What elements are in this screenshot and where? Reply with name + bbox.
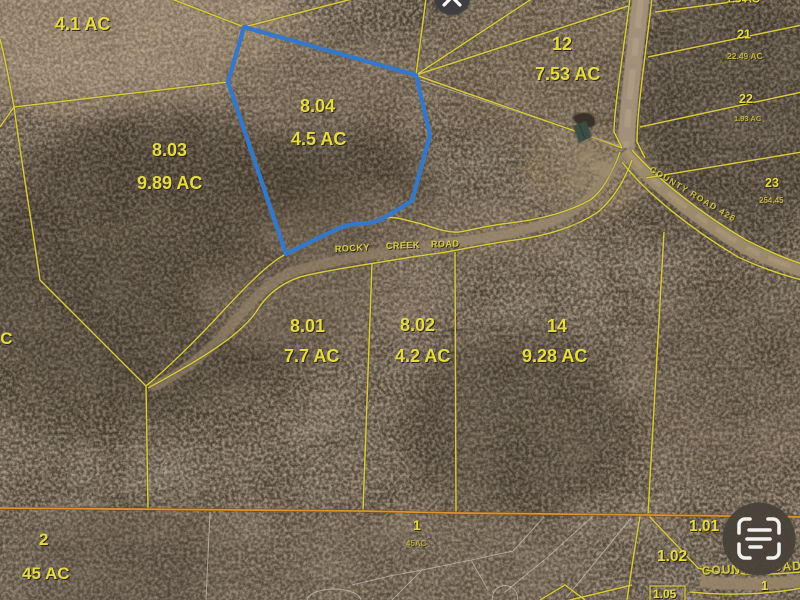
svg-text:4.5 AC: 4.5 AC <box>291 129 346 149</box>
svg-text:9.89 AC: 9.89 AC <box>137 173 202 193</box>
svg-text:22.49 AC: 22.49 AC <box>727 51 763 61</box>
svg-text:1: 1 <box>413 517 421 533</box>
svg-text:21: 21 <box>737 28 751 42</box>
svg-text:8.03: 8.03 <box>152 140 187 160</box>
svg-text:254.45: 254.45 <box>759 196 784 205</box>
svg-text:22: 22 <box>739 92 753 106</box>
svg-text:1: 1 <box>761 578 768 593</box>
svg-text:7.53 AC: 7.53 AC <box>535 64 600 84</box>
svg-text:CREEK: CREEK <box>386 240 420 251</box>
svg-text:8.01: 8.01 <box>290 316 325 336</box>
svg-text:4.1 AC: 4.1 AC <box>55 14 110 34</box>
svg-text:1.05: 1.05 <box>653 587 677 600</box>
svg-text:7.7 AC: 7.7 AC <box>284 346 339 366</box>
svg-text:8.04: 8.04 <box>300 96 335 116</box>
svg-text:45 AC: 45 AC <box>22 564 70 583</box>
svg-text:1.93 AC: 1.93 AC <box>734 114 762 123</box>
svg-text:ROCKY: ROCKY <box>335 242 370 254</box>
svg-text:23: 23 <box>765 176 779 190</box>
svg-text:ROAD: ROAD <box>431 239 460 249</box>
svg-text:45AC: 45AC <box>406 539 427 548</box>
svg-text:14: 14 <box>547 316 567 336</box>
svg-text:9.28 AC: 9.28 AC <box>522 346 587 366</box>
svg-text:12: 12 <box>552 34 572 54</box>
svg-text:1.5 AC: 1.5 AC <box>726 0 760 6</box>
svg-text:1.02: 1.02 <box>657 548 687 565</box>
svg-text:AC: AC <box>0 329 13 348</box>
svg-text:8.02: 8.02 <box>400 315 435 335</box>
svg-text:4.2 AC: 4.2 AC <box>395 346 450 366</box>
svg-text:2: 2 <box>39 530 48 549</box>
svg-text:1.01: 1.01 <box>689 518 720 535</box>
